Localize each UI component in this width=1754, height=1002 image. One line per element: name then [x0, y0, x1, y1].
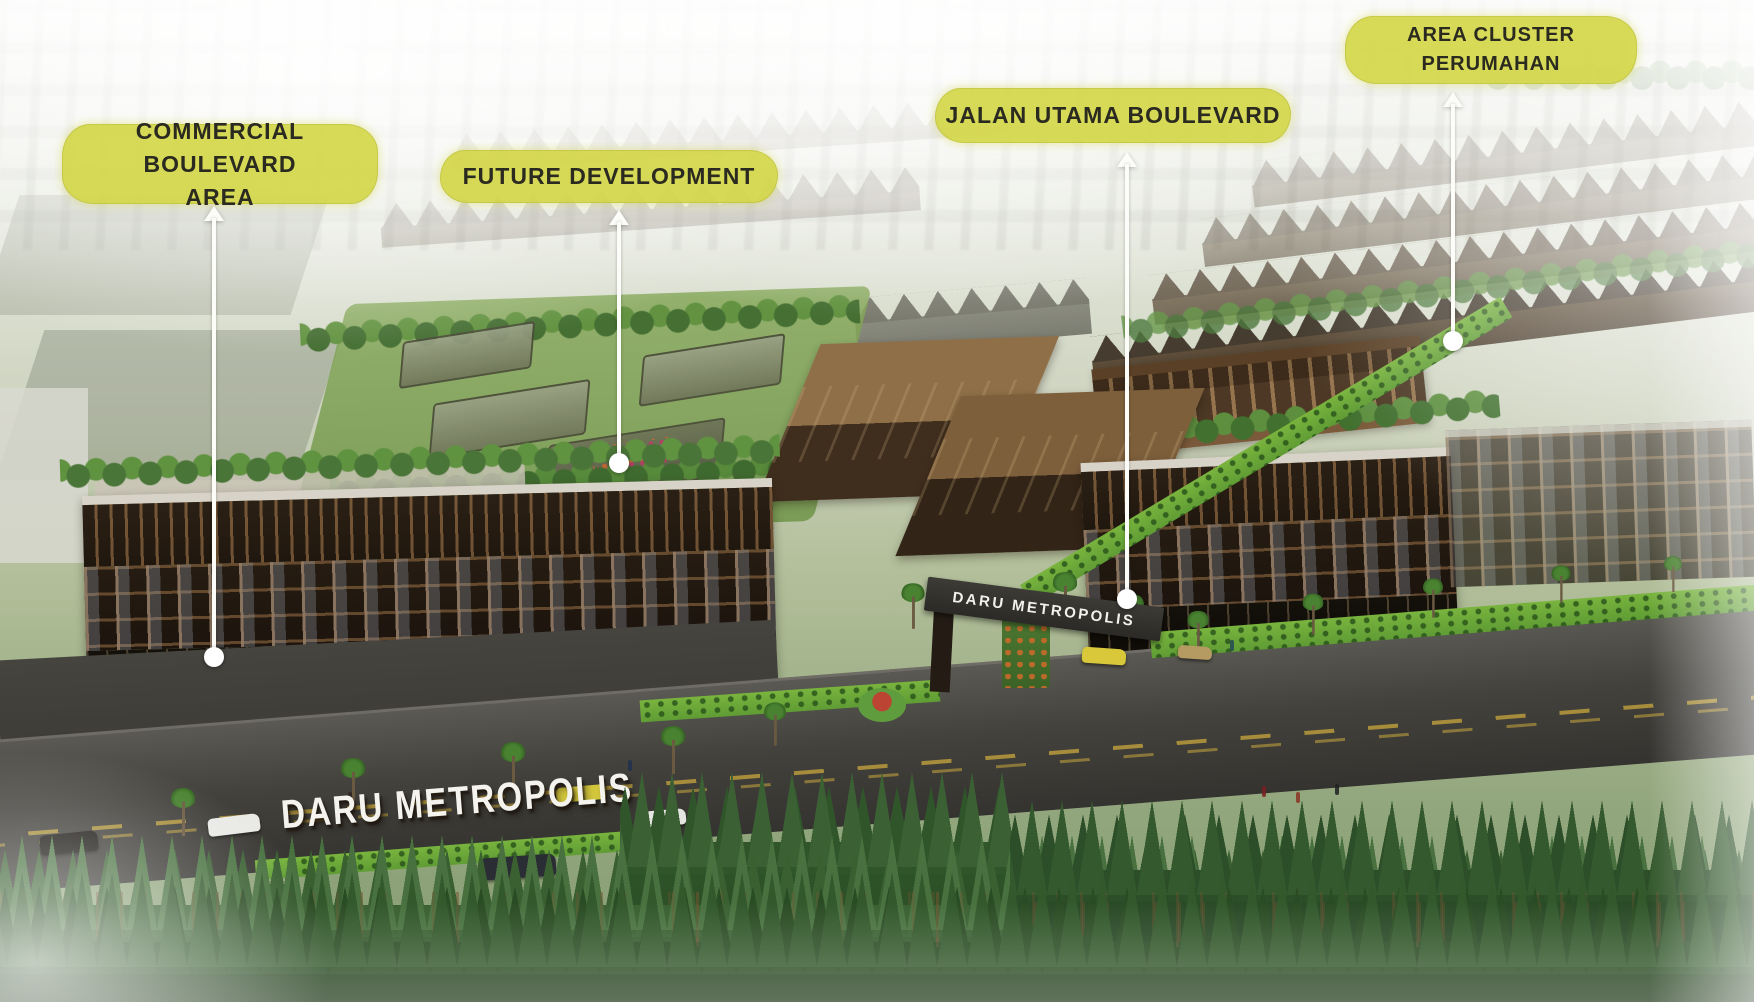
location-dot	[1443, 331, 1463, 351]
callout-label-line1: COMMERCIAL BOULEVARD	[62, 115, 378, 181]
pedestrian	[1335, 784, 1339, 795]
palm-tree	[1422, 578, 1443, 617]
location-dot	[204, 647, 224, 667]
pointer-line	[212, 218, 216, 652]
masterplan-aerial-rendering: DARU METROPOLIS DARU METROPOLIS COMMERCI…	[0, 0, 1754, 1002]
palm-tree	[901, 583, 926, 629]
palm-tree	[1302, 594, 1324, 635]
pointer-line	[1451, 104, 1455, 336]
palm-tree	[763, 702, 786, 745]
palm-tree	[1551, 565, 1571, 602]
callout-pill: FUTURE DEVELOPMENT	[440, 150, 778, 203]
location-dot	[609, 453, 629, 473]
far-right-building	[1445, 420, 1754, 588]
callout-pill: COMMERCIAL BOULEVARD AREA	[62, 124, 378, 204]
car	[1081, 646, 1126, 665]
pedestrian	[1262, 786, 1266, 797]
pedestrian	[1230, 640, 1234, 651]
pine-forest-front-row	[0, 872, 1754, 1002]
location-dot	[1117, 589, 1137, 609]
pointer-line	[617, 222, 621, 458]
roundabout-planter	[858, 688, 906, 722]
palm-tree	[660, 726, 686, 774]
pointer-line	[1125, 164, 1129, 594]
callout-label-line1: JALAN UTAMA BOULEVARD	[946, 102, 1281, 129]
distant-building-block	[0, 195, 329, 315]
callout-label-line1: AREA CLUSTER	[1407, 21, 1575, 50]
car	[1178, 645, 1213, 660]
callout-pill: AREA CLUSTER PERUMAHAN	[1345, 16, 1637, 84]
palm-tree	[1663, 556, 1683, 592]
callout-pill: JALAN UTAMA BOULEVARD	[935, 88, 1291, 143]
callout-label-line2: PERUMAHAN	[1422, 50, 1561, 79]
palm-tree	[170, 788, 196, 836]
callout-label-line1: FUTURE DEVELOPMENT	[463, 163, 756, 190]
